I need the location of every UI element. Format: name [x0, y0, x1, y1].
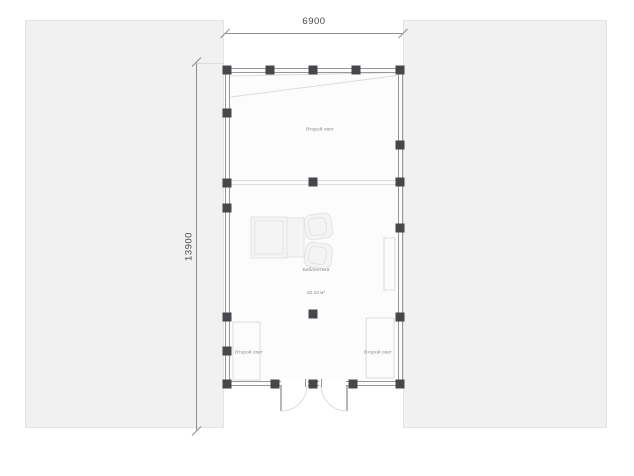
- door-opening-right: [319, 379, 346, 388]
- column: [223, 380, 232, 389]
- column: [396, 178, 405, 187]
- column: [309, 380, 318, 389]
- armchair-top-body: [303, 212, 333, 241]
- floor-plan-drawing: [0, 0, 634, 476]
- table: [251, 217, 287, 258]
- column: [271, 380, 280, 389]
- column: [223, 347, 232, 356]
- column-interior: [309, 178, 318, 187]
- library-room-area: 62.10 м²: [303, 289, 330, 296]
- column: [223, 313, 232, 322]
- column: [396, 224, 405, 233]
- column: [309, 66, 318, 75]
- door-arc-right: [321, 385, 347, 411]
- column: [223, 66, 232, 75]
- dimension-width-label: 6900: [225, 16, 403, 27]
- void-left-label: Второй свет: [235, 349, 263, 355]
- door-arc-left: [281, 385, 307, 411]
- door-opening-left: [281, 379, 308, 388]
- dimension-height-label: 13900: [184, 211, 195, 283]
- void-top-label: Второй свет: [306, 126, 334, 132]
- column: [396, 380, 405, 389]
- column: [396, 66, 405, 75]
- floor-plan-canvas: 6900 13900 Второй свет Библиотека 62.10 …: [0, 0, 634, 476]
- column: [223, 204, 232, 213]
- library-room-name: Библиотека: [303, 265, 330, 273]
- column: [349, 380, 358, 389]
- column: [352, 66, 361, 75]
- armchair-top: [303, 212, 333, 241]
- void-right-label: Второй свет: [364, 349, 392, 355]
- column: [223, 179, 232, 188]
- library-label: Библиотека 62.10 м²: [303, 250, 330, 313]
- column: [266, 66, 275, 75]
- column: [223, 109, 232, 118]
- column: [396, 313, 405, 322]
- column: [396, 141, 405, 150]
